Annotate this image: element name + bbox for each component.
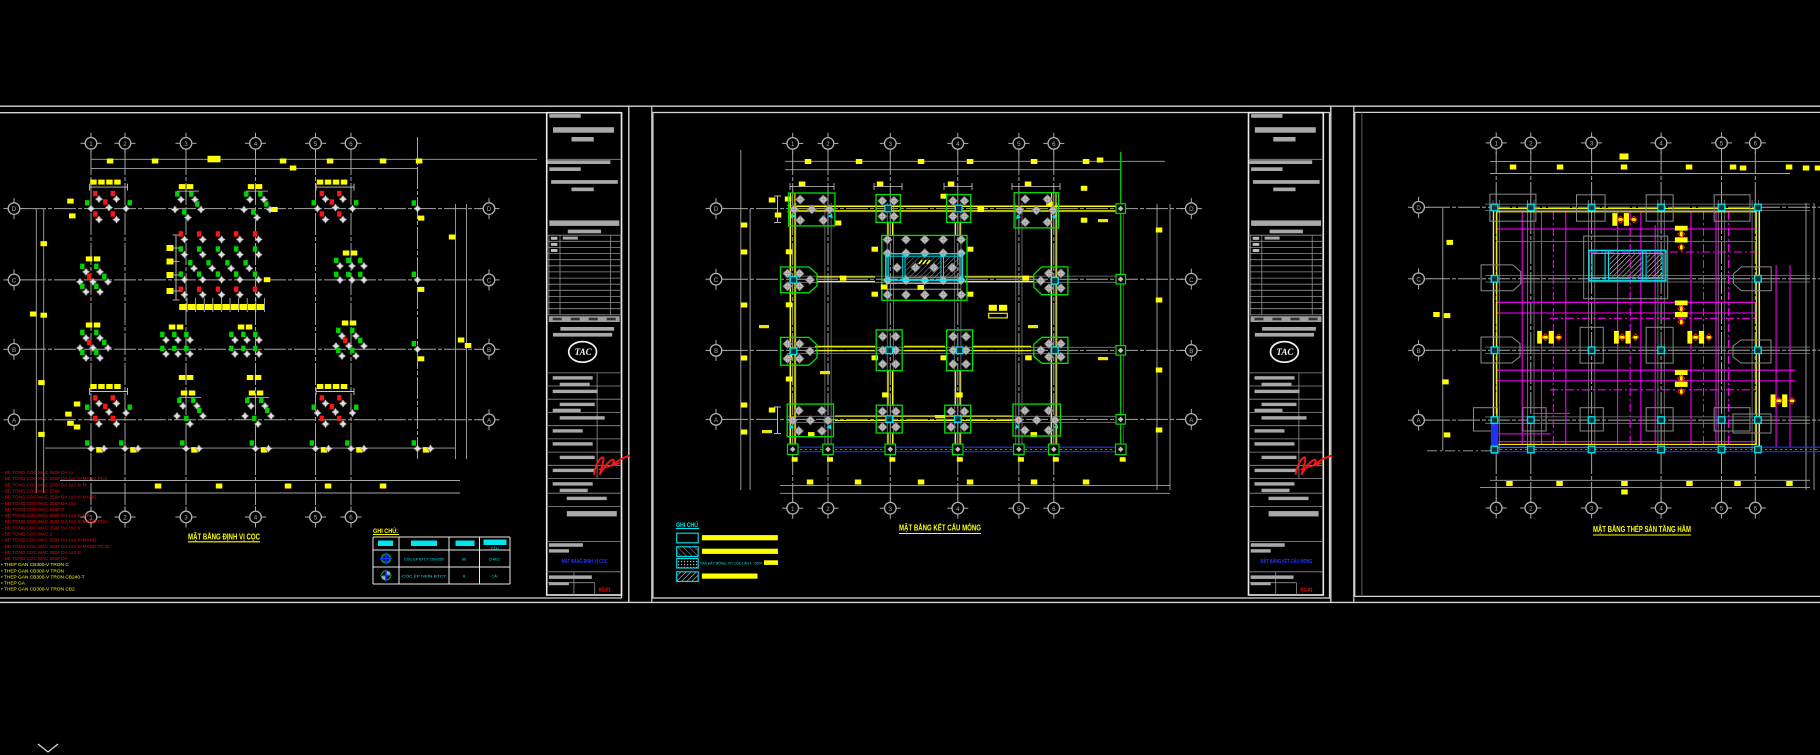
svg-text:TAC: TAC bbox=[1276, 347, 1294, 357]
svg-text:4: 4 bbox=[254, 515, 258, 522]
svg-text:– BE TONG COC MAC 250# DA 1x: – BE TONG COC MAC 250# DA 1x bbox=[1, 470, 74, 475]
svg-text:– BE TONG COC MAC 2: – BE TONG COC MAC 2 bbox=[1, 532, 53, 537]
svg-text:2: 2 bbox=[123, 141, 127, 148]
svg-text:C: C bbox=[12, 278, 17, 285]
svg-text:– BE TONG COC MAC 250# DA 1x2: – BE TONG COC MAC 250# DA 1x2 XI M bbox=[1, 482, 87, 487]
svg-text:2: 2 bbox=[1529, 506, 1533, 513]
svg-text:– BE TONG COC MAC 250# DA 1x2: – BE TONG COC MAC 250# DA 1x2 XI MANG PC… bbox=[1, 544, 110, 549]
svg-text:2: 2 bbox=[826, 506, 830, 513]
svg-text:6: 6 bbox=[349, 141, 353, 148]
svg-text:6: 6 bbox=[1052, 506, 1056, 513]
svg-text:D: D bbox=[487, 206, 492, 213]
svg-text:4: 4 bbox=[1659, 506, 1663, 513]
svg-text:3: 3 bbox=[889, 141, 893, 148]
svg-text:2: 2 bbox=[1529, 141, 1533, 148]
svg-text:• THEP GAN CB300-V TRON: • THEP GAN CB300-V TRON bbox=[1, 568, 65, 574]
svg-text:MẶT BẰNG ĐỊNH VỊ CỌC: MẶT BẰNG ĐỊNH VỊ CỌC bbox=[188, 532, 260, 542]
svg-text:4: 4 bbox=[254, 141, 258, 148]
svg-text:1: 1 bbox=[1494, 141, 1498, 148]
svg-text:KC-01: KC-01 bbox=[599, 588, 611, 594]
svg-text:MẶT BẰNG THÉP SÀN TẦNG HẦM: MẶT BẰNG THÉP SÀN TẦNG HẦM bbox=[1593, 524, 1691, 534]
svg-text:5: 5 bbox=[314, 141, 318, 148]
svg-text:B: B bbox=[487, 347, 491, 354]
svg-text:C: C bbox=[487, 278, 492, 285]
svg-text:6: 6 bbox=[1754, 506, 1758, 513]
svg-text:1: 1 bbox=[1494, 506, 1498, 513]
svg-text:3: 3 bbox=[184, 141, 188, 148]
svg-text:– BE TONG COC MAC 250# DA 1x2: – BE TONG COC MAC 250# DA 1x2 XI MANG bbox=[1, 495, 97, 500]
svg-text:B: B bbox=[1417, 348, 1421, 355]
svg-text:CỐC ÉP BTCT 250x250: CỐC ÉP BTCT 250x250 bbox=[404, 557, 444, 562]
svg-text:• THEP GAN CB300-V TRON C: • THEP GAN CB300-V TRON C bbox=[1, 562, 69, 568]
svg-text:1: 1 bbox=[791, 141, 795, 148]
svg-text:3: 3 bbox=[184, 515, 188, 522]
svg-text:B: B bbox=[12, 347, 16, 354]
svg-text:– BE TONG COC MAC 250# DA 1x2: – BE TONG COC MAC 250# DA 1x2 X bbox=[1, 525, 80, 530]
svg-text:1: 1 bbox=[89, 141, 93, 148]
svg-text:– BE TONG COC MAC 250# DA 1x2: – BE TONG COC MAC 250# DA 1x2 bbox=[1, 501, 76, 506]
svg-text:3: 3 bbox=[889, 506, 893, 513]
svg-text:– BE TONG COC MAC 250# DA: – BE TONG COC MAC 250# DA bbox=[1, 556, 68, 561]
svg-text:CÁI: CÁI bbox=[491, 575, 497, 579]
svg-text:TAC: TAC bbox=[575, 347, 593, 357]
svg-text:6: 6 bbox=[1754, 141, 1758, 148]
svg-text:C: C bbox=[1189, 277, 1194, 284]
svg-text:CHIẾC: CHIẾC bbox=[489, 557, 501, 562]
svg-text:MẶT BẰNG KẾT CẤU MÓNG: MẶT BẰNG KẾT CẤU MÓNG bbox=[1260, 557, 1312, 565]
svg-text:GHI CHÚ:: GHI CHÚ: bbox=[373, 526, 398, 535]
svg-text:– BE TONG COC MAC 250# DA 1x2: – BE TONG COC MAC 250# DA 1x2 XI MANG PC… bbox=[1, 476, 107, 481]
svg-text:90: 90 bbox=[462, 557, 467, 562]
svg-text:D: D bbox=[1416, 205, 1421, 212]
svg-text:C: C bbox=[1416, 276, 1421, 283]
svg-text:2: 2 bbox=[826, 141, 830, 148]
svg-text:6: 6 bbox=[349, 515, 353, 522]
svg-text:5: 5 bbox=[314, 515, 318, 522]
svg-text:B: B bbox=[1189, 348, 1193, 355]
svg-text:– BE TONG COC MAC 250#: – BE TONG COC MAC 250# bbox=[1, 488, 60, 493]
svg-text:– BE TONG COC MAC 250# DA 1x2: – BE TONG COC MAC 250# DA 1x2 XI MANG bbox=[1, 538, 97, 543]
svg-text:4: 4 bbox=[956, 506, 960, 513]
svg-text:5: 5 bbox=[1017, 141, 1021, 148]
svg-text:TẤN: TẤN bbox=[490, 547, 498, 552]
svg-text:– BE TONG COC MAC 250# DA 1x2: – BE TONG COC MAC 250# DA 1x2 XI MA bbox=[1, 513, 91, 518]
svg-text:– BE TONG COC MAC 250# D: – BE TONG COC MAC 250# D bbox=[1, 507, 65, 512]
svg-text:D: D bbox=[1189, 206, 1194, 213]
svg-text:1: 1 bbox=[791, 506, 795, 513]
svg-text:5: 5 bbox=[1017, 506, 1021, 513]
svg-text:CỐC ÉP NEÌN BTCT: CỐC ÉP NEÌN BTCT bbox=[402, 574, 447, 579]
svg-text:MẶT BẰNG ĐỊNH VỊ CỌC: MẶT BẰNG ĐỊNH VỊ CỌC bbox=[562, 557, 608, 565]
svg-text:MẶT BẰNG KẾT CẤU MÓNG: MẶT BẰNG KẾT CẤU MÓNG bbox=[899, 523, 981, 533]
svg-text:• THEP GAN CB300-V TRON CB2: • THEP GAN CB300-V TRON CB2 bbox=[1, 587, 75, 593]
svg-text:5: 5 bbox=[1720, 141, 1724, 148]
svg-text:5: 5 bbox=[1720, 506, 1724, 513]
svg-text:D: D bbox=[714, 206, 719, 213]
svg-text:• THEP GA: • THEP GA bbox=[1, 581, 26, 587]
svg-text:VÁN ĐÁY MÓNG, VỐ CỐC-LẬN 4 - 6: VÁN ĐÁY MÓNG, VỐ CỐC-LẬN 4 - 600# bbox=[700, 561, 763, 566]
svg-text:KC-01: KC-01 bbox=[1301, 588, 1313, 594]
svg-text:6: 6 bbox=[1052, 141, 1056, 148]
svg-text:4: 4 bbox=[956, 141, 960, 148]
svg-text:GHI CHÚ: GHI CHÚ bbox=[676, 522, 698, 529]
svg-text:• THEP GAN CB300-V TRON CB240-: • THEP GAN CB300-V TRON CB240-T bbox=[1, 574, 85, 580]
svg-text:4: 4 bbox=[1659, 141, 1663, 148]
svg-text:D: D bbox=[12, 206, 17, 213]
svg-text:B: B bbox=[714, 348, 718, 355]
svg-text:2: 2 bbox=[123, 515, 127, 522]
svg-text:3: 3 bbox=[1590, 141, 1594, 148]
svg-text:C: C bbox=[714, 277, 719, 284]
svg-text:3: 3 bbox=[1590, 506, 1594, 513]
svg-text:– BE TONG COC MAC 250# DA 1x2: – BE TONG COC MAC 250# DA 1x2 XI MANG PC… bbox=[1, 519, 107, 524]
svg-text:– BE TONG COC MAC 250# DA 1x2: – BE TONG COC MAC 250# DA 1x2 XI bbox=[1, 550, 82, 555]
